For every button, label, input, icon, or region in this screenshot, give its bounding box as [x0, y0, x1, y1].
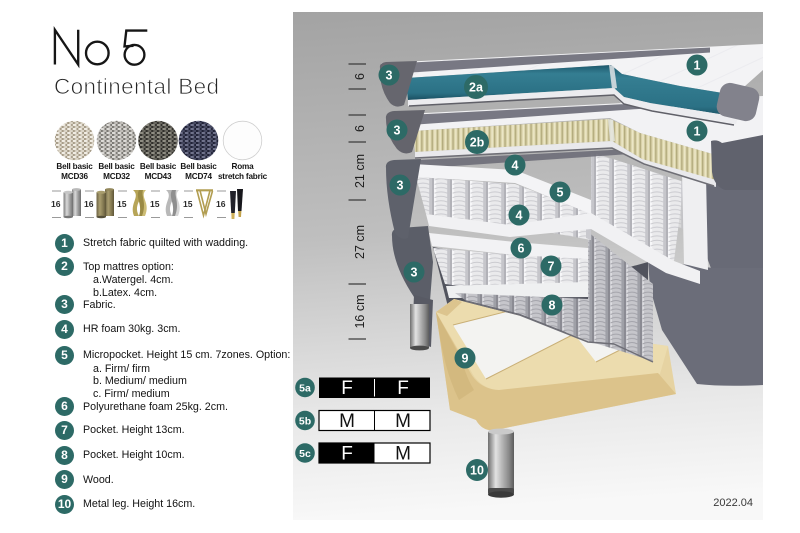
svg-text:5: 5 — [557, 186, 564, 200]
svg-text:F: F — [341, 444, 353, 465]
svg-text:1: 1 — [694, 59, 701, 73]
svg-text:3: 3 — [386, 69, 393, 83]
svg-text:6: 6 — [518, 242, 525, 256]
svg-text:27 cm: 27 cm — [353, 225, 367, 259]
svg-text:1: 1 — [694, 125, 701, 139]
svg-text:6: 6 — [353, 73, 367, 80]
svg-text:M: M — [395, 444, 411, 465]
svg-text:2a: 2a — [469, 81, 484, 95]
svg-text:3: 3 — [394, 124, 401, 138]
svg-text:2b: 2b — [470, 136, 485, 150]
svg-text:8: 8 — [549, 299, 556, 313]
svg-text:3: 3 — [397, 179, 404, 193]
svg-text:F: F — [397, 378, 409, 399]
svg-text:7: 7 — [548, 260, 555, 274]
svg-text:16 cm: 16 cm — [353, 294, 367, 328]
svg-text:4: 4 — [516, 209, 523, 223]
svg-text:M: M — [339, 411, 355, 432]
svg-text:4: 4 — [512, 159, 519, 173]
svg-text:2022.04: 2022.04 — [713, 497, 753, 509]
svg-text:21 cm: 21 cm — [353, 154, 367, 188]
svg-text:5c: 5c — [299, 448, 311, 460]
svg-text:M: M — [395, 411, 411, 432]
svg-text:9: 9 — [462, 352, 469, 366]
svg-text:5b: 5b — [299, 415, 311, 427]
svg-text:5a: 5a — [299, 382, 311, 394]
svg-text:3: 3 — [411, 266, 418, 280]
svg-text:10: 10 — [470, 464, 484, 478]
svg-text:F: F — [341, 378, 353, 399]
svg-text:6: 6 — [353, 125, 367, 132]
